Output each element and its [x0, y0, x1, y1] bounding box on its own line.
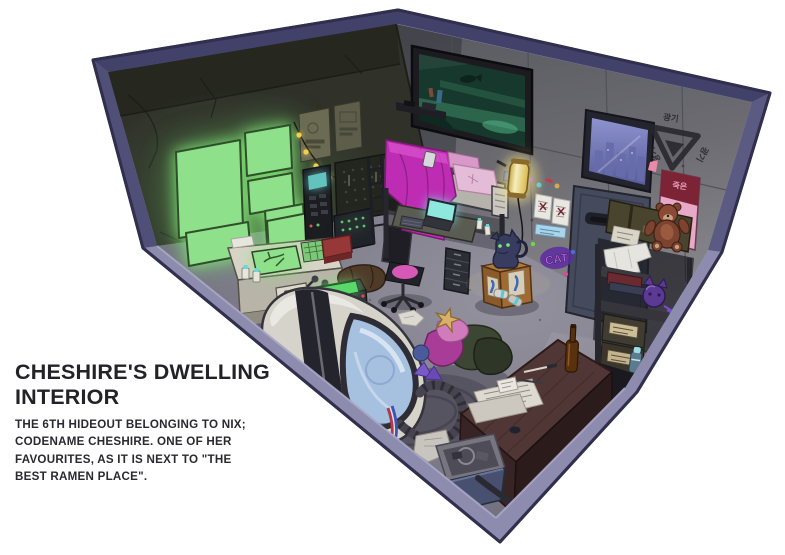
pinned-note — [552, 198, 570, 226]
artwork-title: CHESHIRE'S DWELLING INTERIOR — [15, 360, 285, 409]
desk-drawers — [444, 248, 470, 294]
description-line: BEST RAMEN PLACE". — [15, 468, 285, 485]
description-line: FAVOURITES, AS IT IS NEXT TO "THE — [15, 451, 285, 468]
intercom-rack — [303, 165, 333, 248]
screen-panel — [245, 125, 292, 176]
screen-panel — [176, 140, 243, 238]
description-line: THE 6TH HIDEOUT BELONGING TO NIX; — [15, 416, 285, 433]
phone-on-bed — [422, 151, 436, 168]
illustration-canvas: 광기 광기 광기 죽은 — [0, 0, 785, 555]
description-line: CODENAME CHESHIRE. ONE OF HER — [15, 433, 285, 450]
caption-block: CHESHIRE'S DWELLING INTERIOR THE 6TH HID… — [15, 360, 285, 486]
title-line-2: INTERIOR — [15, 385, 119, 409]
hazard-text-top: 광기 — [662, 112, 679, 125]
artwork-description: THE 6TH HIDEOUT BELONGING TO NIX; CODENA… — [15, 416, 285, 486]
title-line-1: CHESHIRE'S DWELLING — [15, 360, 270, 384]
